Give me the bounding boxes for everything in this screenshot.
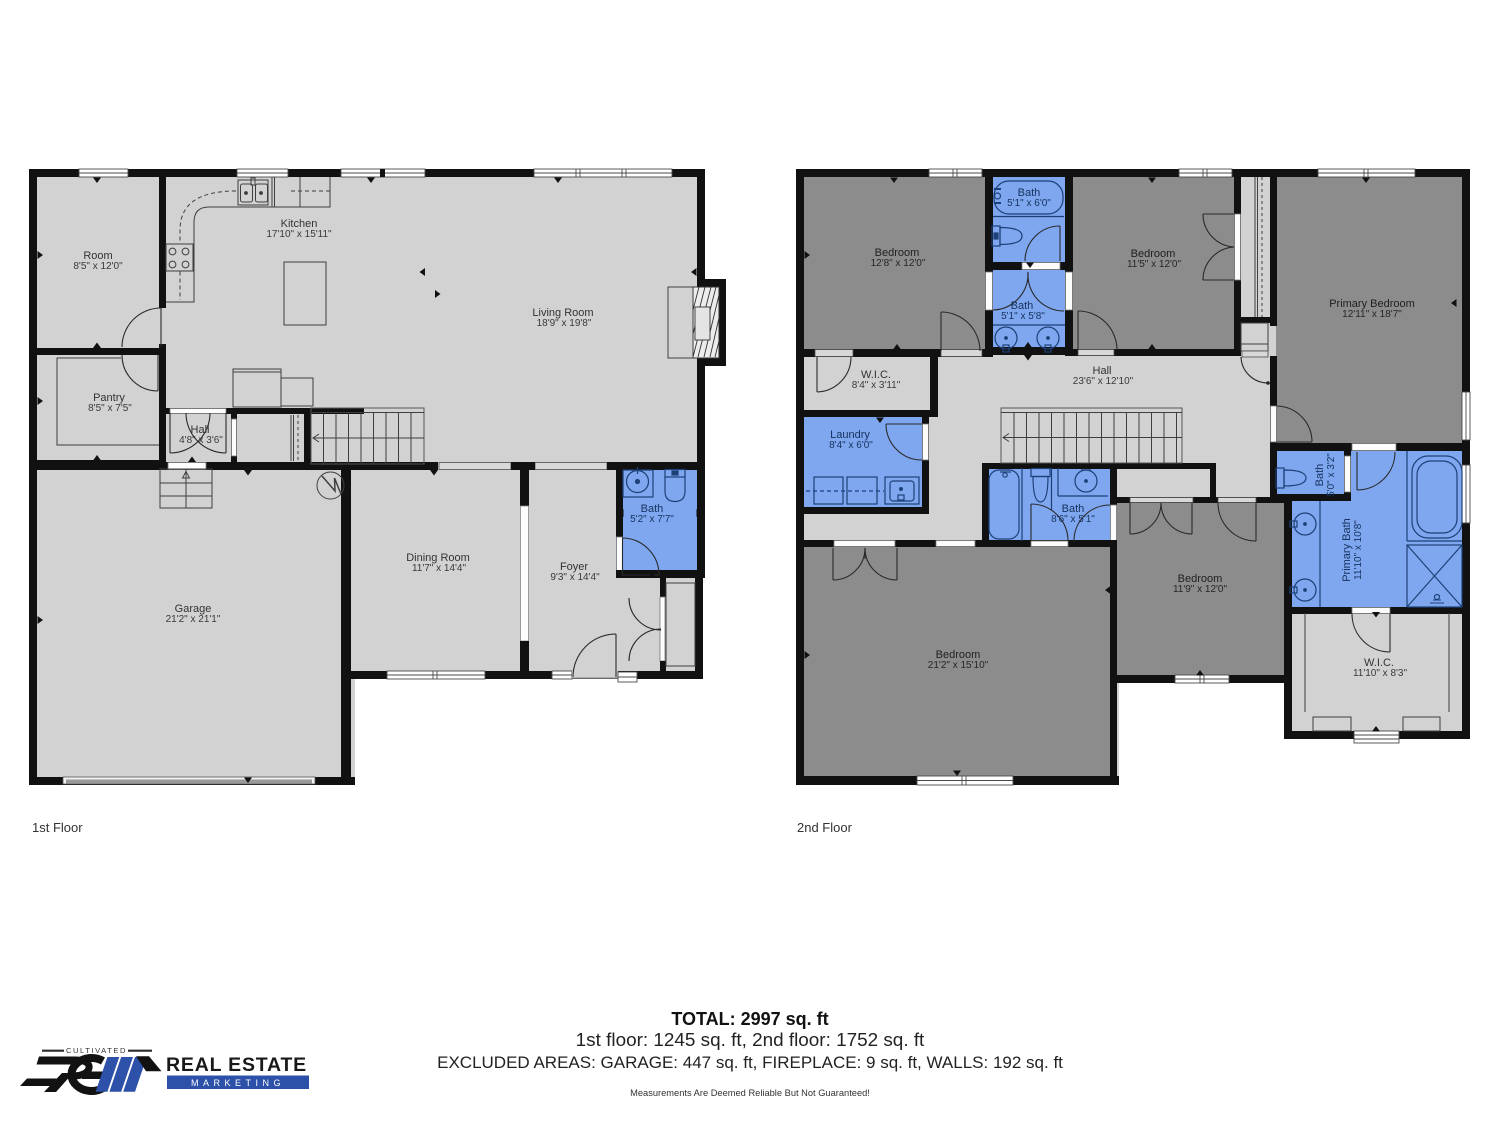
svg-text:5'1" x 6'0": 5'1" x 6'0" bbox=[1007, 198, 1051, 209]
svg-text:2nd Floor: 2nd Floor bbox=[797, 820, 853, 835]
svg-text:8'6" x 5'1": 8'6" x 5'1" bbox=[1051, 514, 1095, 525]
svg-text:11'9" x 12'0": 11'9" x 12'0" bbox=[1173, 584, 1228, 595]
svg-text:1st floor: 1245 sq. ft, 2nd fl: 1st floor: 1245 sq. ft, 2nd floor: 1752 … bbox=[576, 1030, 925, 1051]
svg-text:8'5" x 7'5": 8'5" x 7'5" bbox=[88, 403, 132, 414]
svg-text:Primary Bath: Primary Bath bbox=[1341, 518, 1353, 582]
svg-text:9'3" x 14'4": 9'3" x 14'4" bbox=[550, 572, 600, 583]
svg-text:21'2" x 21'1": 21'2" x 21'1" bbox=[166, 614, 221, 625]
svg-text:5'2" x 7'7": 5'2" x 7'7" bbox=[630, 514, 674, 525]
svg-text:4'8" x 3'6": 4'8" x 3'6" bbox=[179, 435, 223, 446]
svg-text:TOTAL: 2997 sq. ft: TOTAL: 2997 sq. ft bbox=[671, 1009, 828, 1029]
svg-text:8'4" x 3'11": 8'4" x 3'11" bbox=[852, 380, 901, 391]
svg-text:23'6" x 12'10": 23'6" x 12'10" bbox=[1073, 376, 1134, 387]
svg-text:MARKETING: MARKETING bbox=[191, 1078, 285, 1088]
svg-text:12'11" x 18'7": 12'11" x 18'7" bbox=[1342, 309, 1402, 320]
svg-text:1st Floor: 1st Floor bbox=[32, 820, 83, 835]
svg-text:Measurements Are Deemed Reliab: Measurements Are Deemed Reliable But Not… bbox=[630, 1088, 870, 1098]
svg-text:CULTIVATED: CULTIVATED bbox=[66, 1046, 127, 1055]
svg-text:11'10" x 10'8": 11'10" x 10'8" bbox=[1353, 520, 1364, 580]
svg-text:17'10" x 15'11": 17'10" x 15'11" bbox=[266, 229, 332, 240]
svg-text:5'1" x 5'8": 5'1" x 5'8" bbox=[1001, 311, 1045, 322]
svg-text:8'4" x 6'0": 8'4" x 6'0" bbox=[829, 440, 873, 451]
svg-text:Bath: Bath bbox=[1314, 464, 1326, 487]
svg-text:11'7" x 14'4": 11'7" x 14'4" bbox=[412, 563, 467, 574]
svg-text:5'0" x 3'2": 5'0" x 3'2" bbox=[1326, 453, 1337, 497]
svg-text:EXCLUDED AREAS: GARAGE: 447 sq: EXCLUDED AREAS: GARAGE: 447 sq. ft, FIRE… bbox=[437, 1053, 1063, 1072]
svg-text:12'8" x 12'0": 12'8" x 12'0" bbox=[871, 258, 926, 269]
svg-text:18'9" x 19'8": 18'9" x 19'8" bbox=[537, 318, 592, 329]
svg-text:11'10" x 8'3": 11'10" x 8'3" bbox=[1353, 668, 1408, 679]
svg-text:8'5" x 12'0": 8'5" x 12'0" bbox=[73, 261, 123, 272]
svg-text:21'2" x 15'10": 21'2" x 15'10" bbox=[928, 660, 989, 671]
svg-text:REAL ESTATE: REAL ESTATE bbox=[166, 1054, 307, 1076]
svg-text:11'5" x 12'0": 11'5" x 12'0" bbox=[1127, 259, 1182, 270]
